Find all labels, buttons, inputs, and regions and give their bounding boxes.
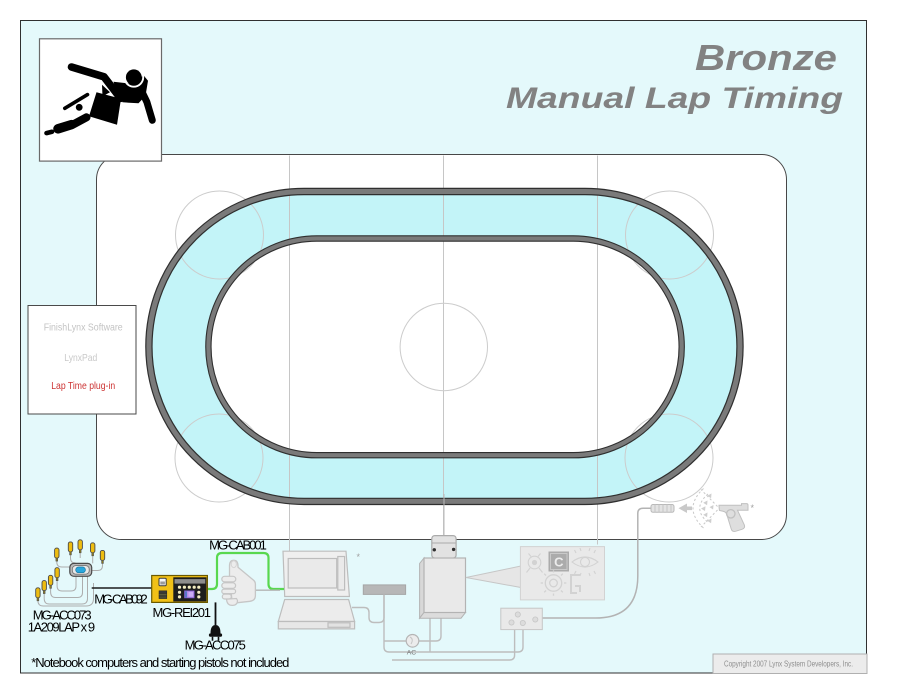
svg-text:Lap Time plug-in: Lap Time plug-in: [51, 380, 115, 392]
svg-text:FinishLynx Software: FinishLynx Software: [44, 321, 123, 333]
svg-text:Copyright 2007 Lynx System Dev: Copyright 2007 Lynx System Developers, I…: [724, 660, 853, 669]
svg-text:MG-CAB001: MG-CAB001: [209, 538, 267, 553]
svg-text:LynxPad: LynxPad: [64, 352, 97, 364]
svg-text:Manual Lap Timing: Manual Lap Timing: [506, 82, 843, 115]
svg-text:MG-REI201: MG-REI201: [153, 605, 212, 620]
svg-text:C: C: [554, 555, 564, 570]
svg-text:*Notebook computers and starti: *Notebook computers and starting pistols…: [31, 655, 289, 670]
svg-text:AC: AC: [407, 650, 417, 657]
svg-text:1A209LAP x 9: 1A209LAP x 9: [28, 619, 95, 634]
svg-text:MG-CAB092: MG-CAB092: [94, 591, 147, 606]
svg-text:Bronze: Bronze: [695, 37, 837, 78]
svg-text:*: *: [357, 552, 361, 562]
svg-text:*: *: [751, 503, 755, 513]
svg-text:MG-ACC075: MG-ACC075: [185, 637, 246, 652]
